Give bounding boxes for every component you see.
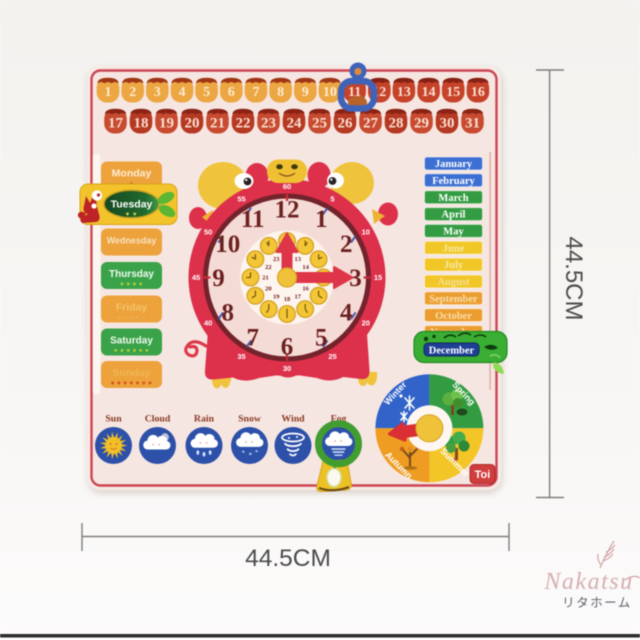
svg-text:Rain: Rain (194, 414, 215, 425)
svg-text:August: August (437, 277, 470, 288)
svg-text:20: 20 (185, 116, 200, 132)
svg-text:19: 19 (159, 116, 174, 132)
svg-text:2: 2 (129, 85, 136, 100)
svg-text:27: 27 (363, 116, 379, 132)
svg-text:16: 16 (471, 85, 485, 100)
svg-text:30: 30 (440, 116, 455, 132)
svg-text:14: 14 (302, 264, 309, 271)
svg-text:9: 9 (302, 85, 309, 100)
svg-text:♥ ♥: ♥ ♥ (126, 212, 138, 218)
svg-text:1: 1 (315, 206, 328, 233)
svg-text:Monday: Monday (112, 168, 152, 180)
svg-text:Wednesday: Wednesday (107, 236, 157, 246)
svg-text:22: 22 (265, 264, 272, 271)
svg-text:50: 50 (204, 228, 212, 237)
svg-text:11: 11 (241, 206, 265, 233)
svg-text:July: July (444, 260, 464, 271)
svg-text:18: 18 (284, 296, 291, 303)
svg-text:October: October (435, 311, 472, 322)
svg-text:5: 5 (330, 194, 334, 203)
svg-text:Wind: Wind (281, 414, 305, 425)
svg-text:April: April (442, 210, 466, 221)
svg-text:January: January (435, 159, 473, 170)
svg-text:Friday: Friday (116, 302, 148, 314)
svg-text:23: 23 (273, 256, 280, 263)
svg-text:♥ ♥ ♥ ♥ ♥ ♥: ♥ ♥ ♥ ♥ ♥ ♥ (114, 349, 149, 355)
svg-text:44.5CM: 44.5CM (560, 236, 587, 320)
svg-text:13: 13 (397, 85, 411, 100)
svg-text:September: September (429, 294, 478, 305)
svg-text:15: 15 (446, 85, 460, 100)
svg-text:25: 25 (328, 352, 336, 361)
svg-text:18: 18 (134, 116, 149, 132)
svg-text:35: 35 (237, 352, 245, 361)
svg-text:17: 17 (295, 293, 302, 300)
svg-text:3: 3 (154, 85, 161, 100)
svg-text:24: 24 (287, 116, 303, 132)
svg-text:December: December (429, 345, 475, 356)
svg-text:♥ ♥ ♥ ♥ ♥ ♥ ♥: ♥ ♥ ♥ ♥ ♥ ♥ ♥ (111, 381, 152, 387)
svg-text:10: 10 (362, 228, 370, 237)
svg-text:60: 60 (283, 182, 291, 191)
svg-text:44.5CM: 44.5CM (245, 545, 331, 572)
svg-text:Toi: Toi (475, 469, 491, 481)
svg-text:31: 31 (465, 116, 480, 132)
svg-text:Snow: Snow (238, 414, 262, 425)
svg-text:リタホーム: リタホーム (562, 596, 632, 610)
svg-text:Cloud: Cloud (145, 414, 171, 425)
svg-text:55: 55 (237, 194, 245, 203)
svg-text:13: 13 (295, 256, 302, 263)
svg-text:March: March (438, 193, 468, 204)
svg-text:2: 2 (340, 231, 353, 258)
svg-text:7: 7 (247, 325, 260, 352)
svg-text:12: 12 (275, 197, 300, 224)
svg-text:♥ ♥ ♥ ♥: ♥ ♥ ♥ ♥ (120, 282, 143, 288)
svg-text:8: 8 (277, 85, 284, 100)
svg-text:Thursday: Thursday (109, 269, 154, 280)
svg-text:16: 16 (302, 285, 309, 292)
svg-text:17: 17 (108, 116, 124, 132)
svg-text:Nakatsu: Nakatsu (543, 569, 633, 595)
svg-text:15: 15 (374, 273, 382, 282)
svg-text:10: 10 (215, 231, 240, 258)
svg-text:1: 1 (105, 85, 112, 100)
svg-text:4: 4 (340, 299, 353, 326)
svg-text:4: 4 (179, 85, 186, 100)
svg-text:6: 6 (281, 334, 294, 361)
svg-text:♥ ♥ ♥: ♥ ♥ ♥ (123, 249, 140, 255)
svg-text:20: 20 (265, 285, 272, 292)
svg-text:45: 45 (192, 273, 200, 282)
svg-text:*: * (249, 451, 253, 459)
svg-text:14: 14 (422, 85, 436, 100)
svg-text:May: May (443, 227, 464, 238)
svg-text:*: * (255, 450, 258, 456)
svg-text:19: 19 (273, 293, 280, 300)
svg-text:Sunday: Sunday (113, 367, 151, 379)
svg-text:Saturday: Saturday (110, 336, 153, 347)
svg-text:9: 9 (212, 265, 225, 292)
svg-text:5: 5 (203, 85, 210, 100)
svg-text:February: February (432, 176, 475, 187)
svg-text:21: 21 (210, 116, 225, 132)
svg-text:Tuesday: Tuesday (111, 199, 153, 211)
svg-text:25: 25 (312, 116, 327, 132)
svg-text:40: 40 (204, 319, 212, 328)
svg-text:5: 5 (315, 325, 328, 352)
svg-text:June: June (443, 243, 465, 254)
svg-text:10: 10 (323, 85, 337, 100)
svg-text:26: 26 (338, 116, 354, 132)
svg-text:Sun: Sun (105, 414, 122, 425)
svg-text:22: 22 (236, 116, 251, 132)
svg-text:*: * (242, 451, 245, 457)
svg-text:30: 30 (283, 364, 291, 373)
svg-text:28: 28 (389, 116, 404, 132)
svg-text:29: 29 (414, 116, 429, 132)
svg-text:21: 21 (262, 275, 269, 282)
svg-text:7: 7 (253, 85, 260, 100)
svg-text:6: 6 (228, 85, 235, 100)
svg-text:23: 23 (261, 116, 276, 132)
svg-text:♥ ♥ ♥ ♥ ♥: ♥ ♥ ♥ ♥ ♥ (117, 316, 146, 322)
svg-text:20: 20 (362, 319, 370, 328)
svg-text:8: 8 (221, 299, 234, 326)
